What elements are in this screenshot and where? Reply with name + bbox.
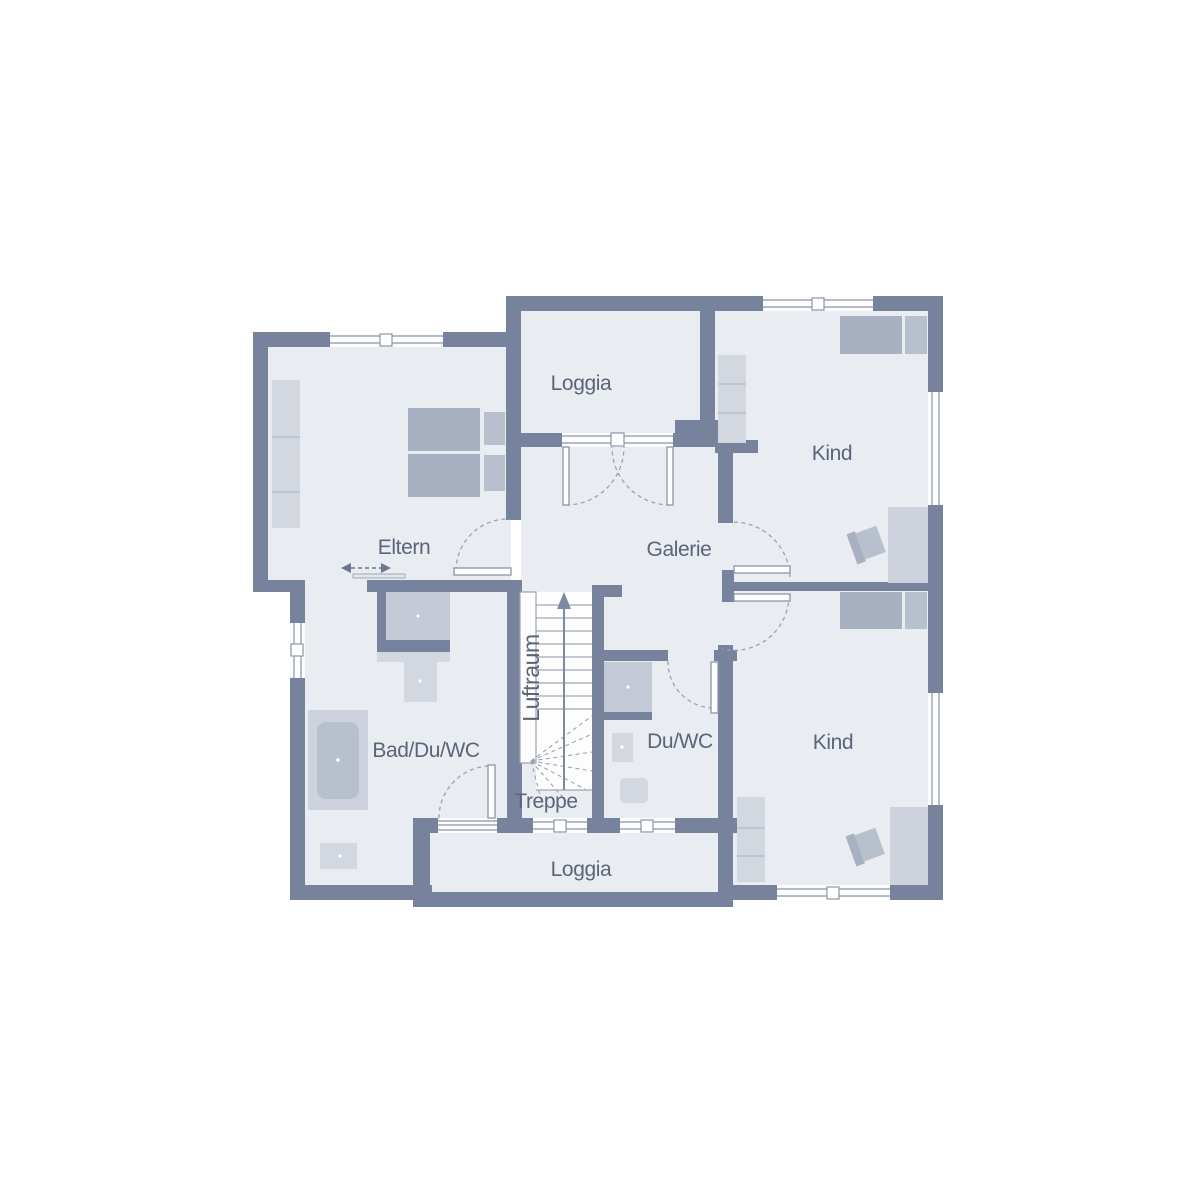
window-kind-top-right	[928, 392, 943, 505]
kind-bottom-bed	[840, 592, 927, 629]
treppe-loggia-sill	[533, 818, 587, 833]
duwc-washbasin	[612, 733, 633, 762]
floor-plan-canvas: Eltern Loggia Kind Galerie Bad/Du/WC Du/…	[0, 0, 1200, 1200]
door-leaf-duwc	[711, 662, 718, 713]
kind-top-bed	[840, 316, 927, 354]
floor-plan-page: Eltern Loggia Kind Galerie Bad/Du/WC Du/…	[0, 0, 1200, 1200]
room-label-loggia-bottom: Loggia	[551, 858, 612, 881]
room-label-galerie: Galerie	[647, 538, 712, 561]
room-label-loggia-top: Loggia	[551, 372, 612, 395]
window-kind-bottom-right	[928, 693, 943, 805]
room-label-du-wc: Du/WC	[647, 730, 713, 753]
door-leaf-kind-top	[734, 566, 790, 573]
window-eltern-top	[330, 332, 443, 347]
room-label-eltern: Eltern	[378, 536, 430, 559]
room-label-kind-bottom: Kind	[813, 731, 853, 754]
kind-top-wardrobe	[718, 355, 746, 443]
duwc-loggia-sill	[620, 818, 675, 833]
bathtub	[308, 710, 368, 810]
door-leaf-loggia-right	[667, 447, 673, 505]
shower-partition	[377, 640, 450, 652]
bad-loggia-sill	[438, 818, 497, 833]
door-leaf-bad	[488, 765, 495, 818]
window-bad-left	[290, 623, 305, 678]
door-leaf-loggia-left	[563, 447, 569, 505]
window-kind-bottom	[777, 885, 890, 900]
room-label-luftraum: Luftraum	[518, 634, 544, 722]
window-kind-top	[763, 296, 873, 311]
eltern-wardrobe	[272, 380, 300, 528]
door-leaf-eltern	[454, 568, 511, 575]
kind-bottom-wardrobe	[737, 797, 765, 882]
room-label-treppe: Treppe	[514, 790, 577, 813]
bad-washbasin	[320, 843, 357, 869]
door-leaf-kind-bottom	[734, 594, 790, 601]
room-label-bad-du-wc: Bad/Du/WC	[372, 739, 479, 762]
shower-partition	[604, 712, 652, 720]
duwc-toilet	[620, 778, 648, 803]
duwc-shower	[604, 662, 652, 712]
loggia-top-door-sill	[562, 433, 673, 447]
bad-shower	[386, 592, 450, 640]
room-label-kind-top: Kind	[812, 442, 852, 465]
room-galerie-floor	[521, 447, 722, 592]
